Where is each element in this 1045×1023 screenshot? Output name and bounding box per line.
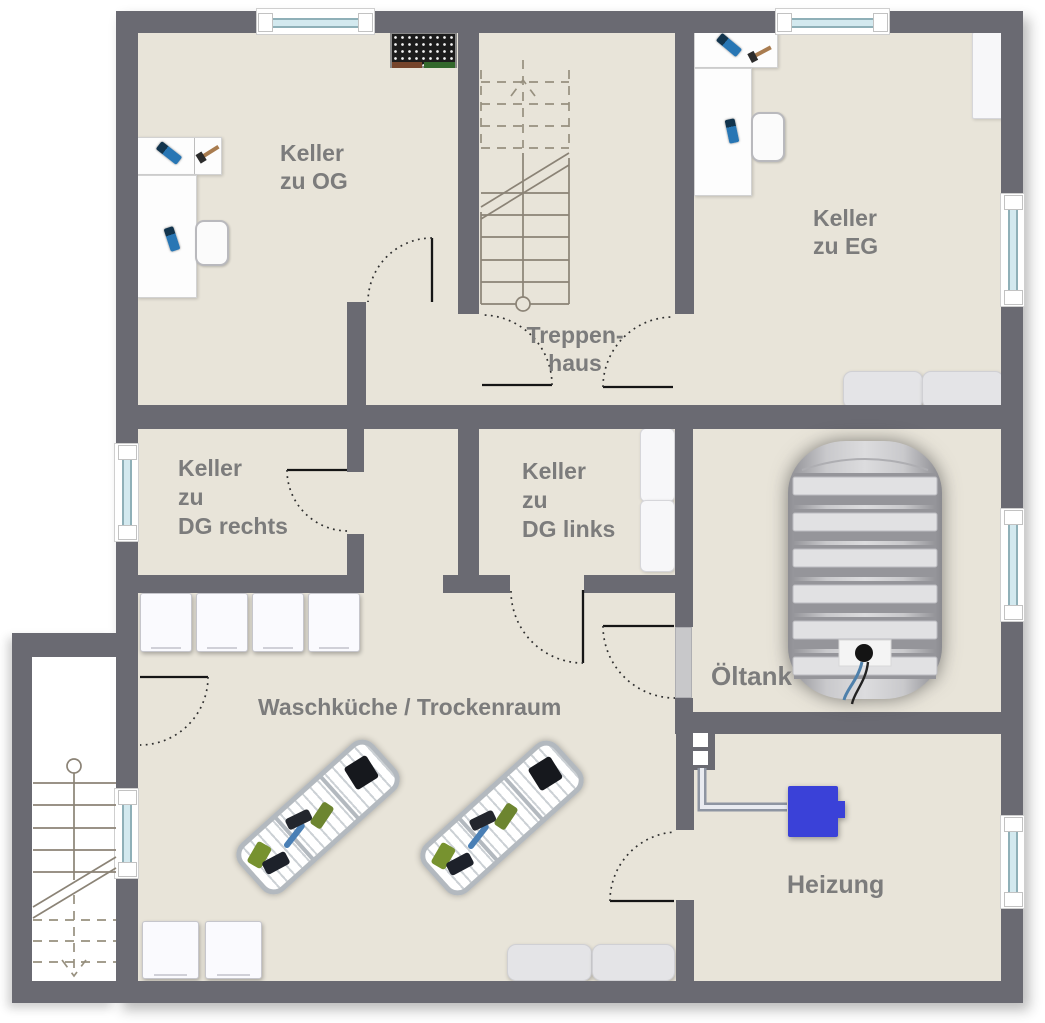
label-line: zu OG: [280, 167, 348, 195]
wall-dg-rechts-east-upper: [347, 429, 364, 472]
window-glass: [1008, 518, 1018, 612]
wall-stub-og: [347, 302, 366, 405]
stairwell-wall-top: [12, 633, 116, 657]
wall-heizung-north: [675, 712, 1003, 734]
clothes-item: [527, 756, 563, 792]
workbench-divider: [194, 138, 195, 174]
wall-corridor-south: [443, 575, 510, 593]
wall-dg-rechts-south: [136, 575, 364, 593]
label-line: Treppen-: [500, 321, 650, 349]
washing-machine-6: [205, 921, 262, 979]
wall-oeltank-west-upper: [675, 429, 693, 627]
window-right-oeltank: [1000, 508, 1025, 622]
room-label-waschkueche: Waschküche / Trockenraum: [258, 693, 561, 721]
chair-og: [195, 220, 229, 266]
washing-machine-2: [196, 593, 248, 652]
door-panel-oeltank: [675, 627, 692, 698]
wall-treppenhaus-left: [458, 31, 479, 314]
cabinet-eg-1: [843, 371, 923, 409]
room-label-keller-eg: Keller zu EG: [813, 204, 878, 260]
window-glass: [266, 18, 365, 28]
window-glass: [785, 18, 880, 28]
window-glass: [1008, 203, 1018, 297]
cabinet-eg-2: [922, 371, 1004, 409]
window-glass: [122, 798, 132, 869]
pegboard-strip-right: [424, 62, 455, 68]
label-line: Öltank: [711, 662, 792, 690]
label-line: zu EG: [813, 232, 878, 260]
label-line: Heizung: [787, 871, 884, 899]
window-glass: [1008, 825, 1018, 899]
chimney-flue-2: [693, 751, 708, 765]
clothes-item: [493, 802, 518, 831]
window-right-eg: [1000, 193, 1025, 307]
washing-machine-1: [140, 593, 192, 652]
label-line: Waschküche / Trockenraum: [258, 693, 561, 721]
window-left-waschkueche: [114, 788, 139, 879]
label-line: Keller: [813, 204, 878, 232]
storage-box-1: [507, 944, 592, 981]
washing-machine-3: [252, 593, 304, 652]
chair-eg: [751, 112, 785, 162]
label-line: Keller: [280, 139, 348, 167]
window-top-og: [256, 8, 375, 35]
room-label-keller-dg-links: Keller zu DG links: [522, 457, 615, 544]
label-line: zu: [178, 483, 288, 512]
room-label-keller-og: Keller zu OG: [280, 139, 348, 195]
label-line: Keller: [522, 457, 615, 486]
label-line: haus: [500, 349, 650, 377]
window-right-heizung: [1000, 815, 1025, 909]
window-left-dg-rechts: [114, 443, 139, 542]
outer-wall-bottom: [12, 981, 1023, 1003]
wall-dg-links-west: [458, 429, 479, 575]
chimney-flue-1: [693, 733, 708, 747]
wall-treppenhaus-right: [675, 31, 694, 314]
label-line: DG rechts: [178, 512, 288, 541]
storage-box-2: [592, 944, 675, 981]
exterior-stairwell-floor: [32, 657, 116, 981]
workbench-eg-side: [694, 68, 752, 196]
room-label-keller-dg-rechts: Keller zu DG rechts: [178, 454, 288, 541]
wall-middle-band: [136, 405, 1003, 429]
washing-machine-4: [308, 593, 360, 652]
window-glass: [122, 453, 132, 532]
label-line: DG links: [522, 515, 615, 544]
shelf-dg-links-2: [640, 500, 675, 572]
floor-plan-basement: Keller zu OG Keller zu EG Treppen- haus …: [0, 0, 1045, 1023]
clothes-item: [309, 801, 334, 830]
room-label-treppenhaus: Treppen- haus: [500, 321, 650, 377]
washing-machine-5: [142, 921, 199, 979]
wall-dg-rechts-east-lower: [347, 534, 364, 575]
room-label-oeltank: Öltank: [711, 662, 792, 690]
window-top-eg: [775, 8, 890, 35]
pegboard-strip-left: [392, 62, 422, 68]
room-label-heizung: Heizung: [787, 871, 884, 899]
wall-heizung-west-lower: [676, 900, 694, 981]
clothes-item: [343, 755, 379, 791]
label-line: Keller: [178, 454, 288, 483]
label-line: zu: [522, 486, 615, 515]
shelf-dg-links-1: [640, 428, 675, 502]
wall-dg-links-south: [584, 575, 675, 593]
stairwell-wall-left: [12, 633, 32, 1003]
